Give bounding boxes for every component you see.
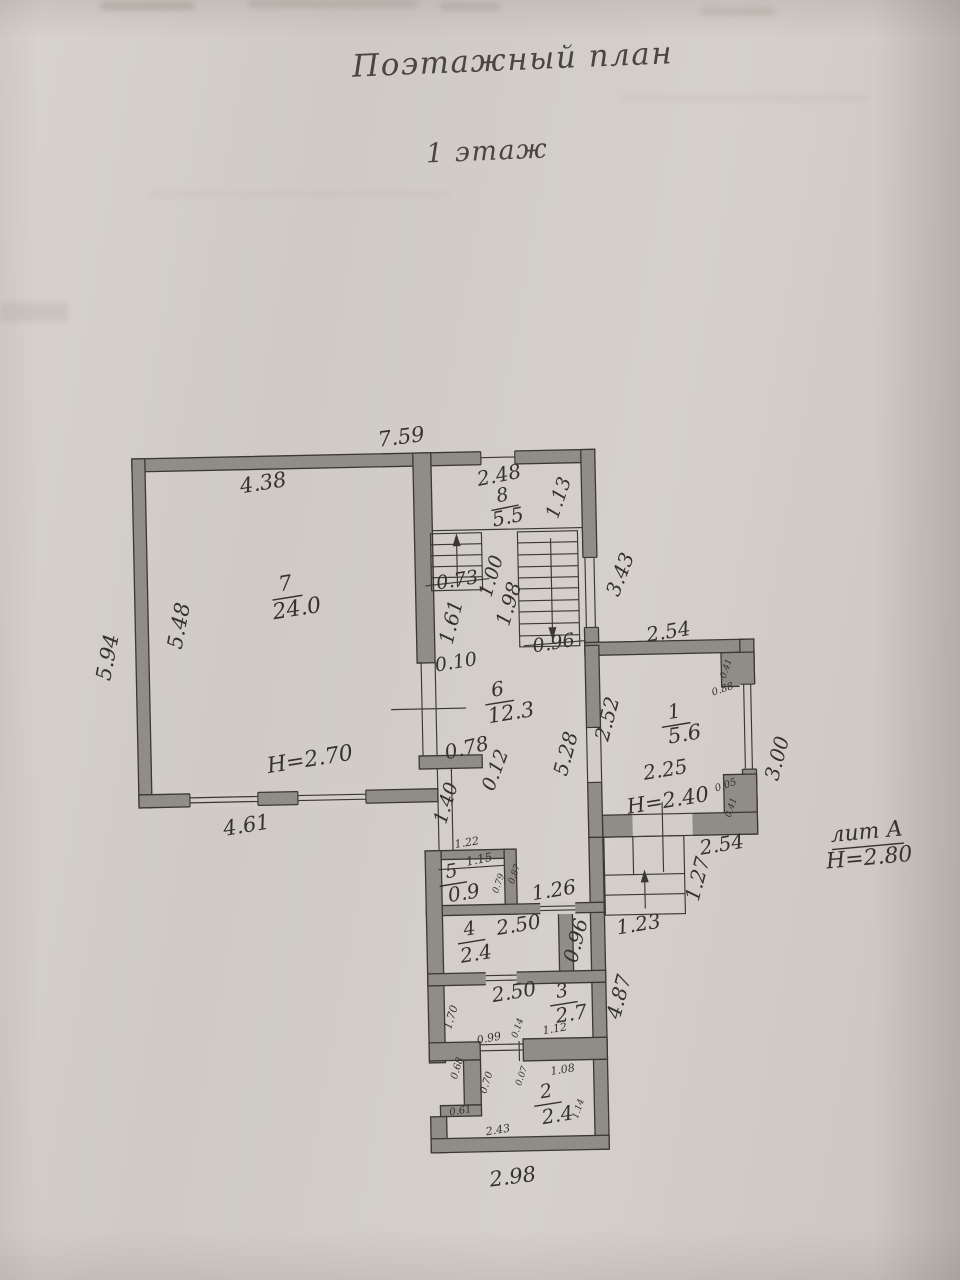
room7-height: H=2.70 bbox=[264, 741, 354, 780]
dim-notch-2: 0.14 bbox=[510, 1017, 526, 1039]
room7-area: 24.0 bbox=[270, 593, 323, 626]
dim-room5-outer: 1.22 bbox=[454, 834, 480, 851]
dim-porch-width: 1.23 bbox=[615, 909, 663, 940]
dim-room7-bottom: 4.61 bbox=[220, 810, 271, 841]
room7-number: 7 bbox=[277, 570, 295, 596]
dim-room2-bottom: 2.43 bbox=[484, 1122, 511, 1139]
dim-left-outer: 5.94 bbox=[91, 632, 123, 682]
dim-room1-width: 2.25 bbox=[640, 754, 689, 785]
room6-area: 12.3 bbox=[486, 697, 536, 728]
room8-area: 5.5 bbox=[490, 502, 526, 532]
dim-pier-1: 0.88 bbox=[710, 681, 735, 699]
scanned-floor-plan-page: Поэтажный план 1 этаж bbox=[0, 0, 960, 1280]
dim-room1-right: 3.00 bbox=[759, 733, 794, 782]
dim-bottom-outer: 2.98 bbox=[487, 1162, 537, 1192]
dim-stair-big: 0.96 bbox=[531, 629, 576, 657]
dim-room2-right: 1.14 bbox=[571, 1098, 587, 1120]
room2-number: 2 bbox=[537, 1080, 553, 1104]
room4-area: 2.4 bbox=[457, 939, 493, 968]
room2-area: 2.4 bbox=[539, 1100, 575, 1129]
porch-steps bbox=[604, 836, 686, 916]
dim-passage: 1.26 bbox=[530, 874, 578, 905]
room1-number: 1 bbox=[666, 698, 682, 724]
dim-room8-right: 1.13 bbox=[542, 474, 576, 521]
dim-right-upper: 3.43 bbox=[601, 549, 639, 599]
dim-room3-b: 1.12 bbox=[542, 1020, 568, 1037]
dim-stair-3: 1.61 bbox=[434, 597, 468, 646]
dim-room7-left: 5.48 bbox=[163, 601, 195, 651]
dim-room7-top: 4.38 bbox=[237, 467, 288, 498]
room5-number: 5 bbox=[444, 860, 459, 884]
floor-plan-drawing: 7.594.385.945.48724.0H=2.704.612.4885.51… bbox=[0, 0, 960, 1280]
room5-area: 0.9 bbox=[446, 878, 482, 907]
dim-partition: 1.40 bbox=[429, 780, 462, 827]
room6-number: 6 bbox=[489, 676, 506, 702]
dim-wall-step: 0.10 bbox=[433, 648, 478, 676]
room1-area: 5.6 bbox=[666, 719, 703, 748]
dim-notch-5: 0.07 bbox=[514, 1065, 530, 1087]
dim-top-outer: 7.59 bbox=[377, 422, 426, 452]
dim-room2-top: 1.08 bbox=[549, 1061, 575, 1078]
dim-room6-right: 5.28 bbox=[548, 729, 583, 778]
room4-number: 4 bbox=[461, 917, 477, 941]
dim-porch-depth: 1.27 bbox=[680, 854, 715, 903]
dim-stub-length: 0.78 bbox=[442, 731, 491, 765]
